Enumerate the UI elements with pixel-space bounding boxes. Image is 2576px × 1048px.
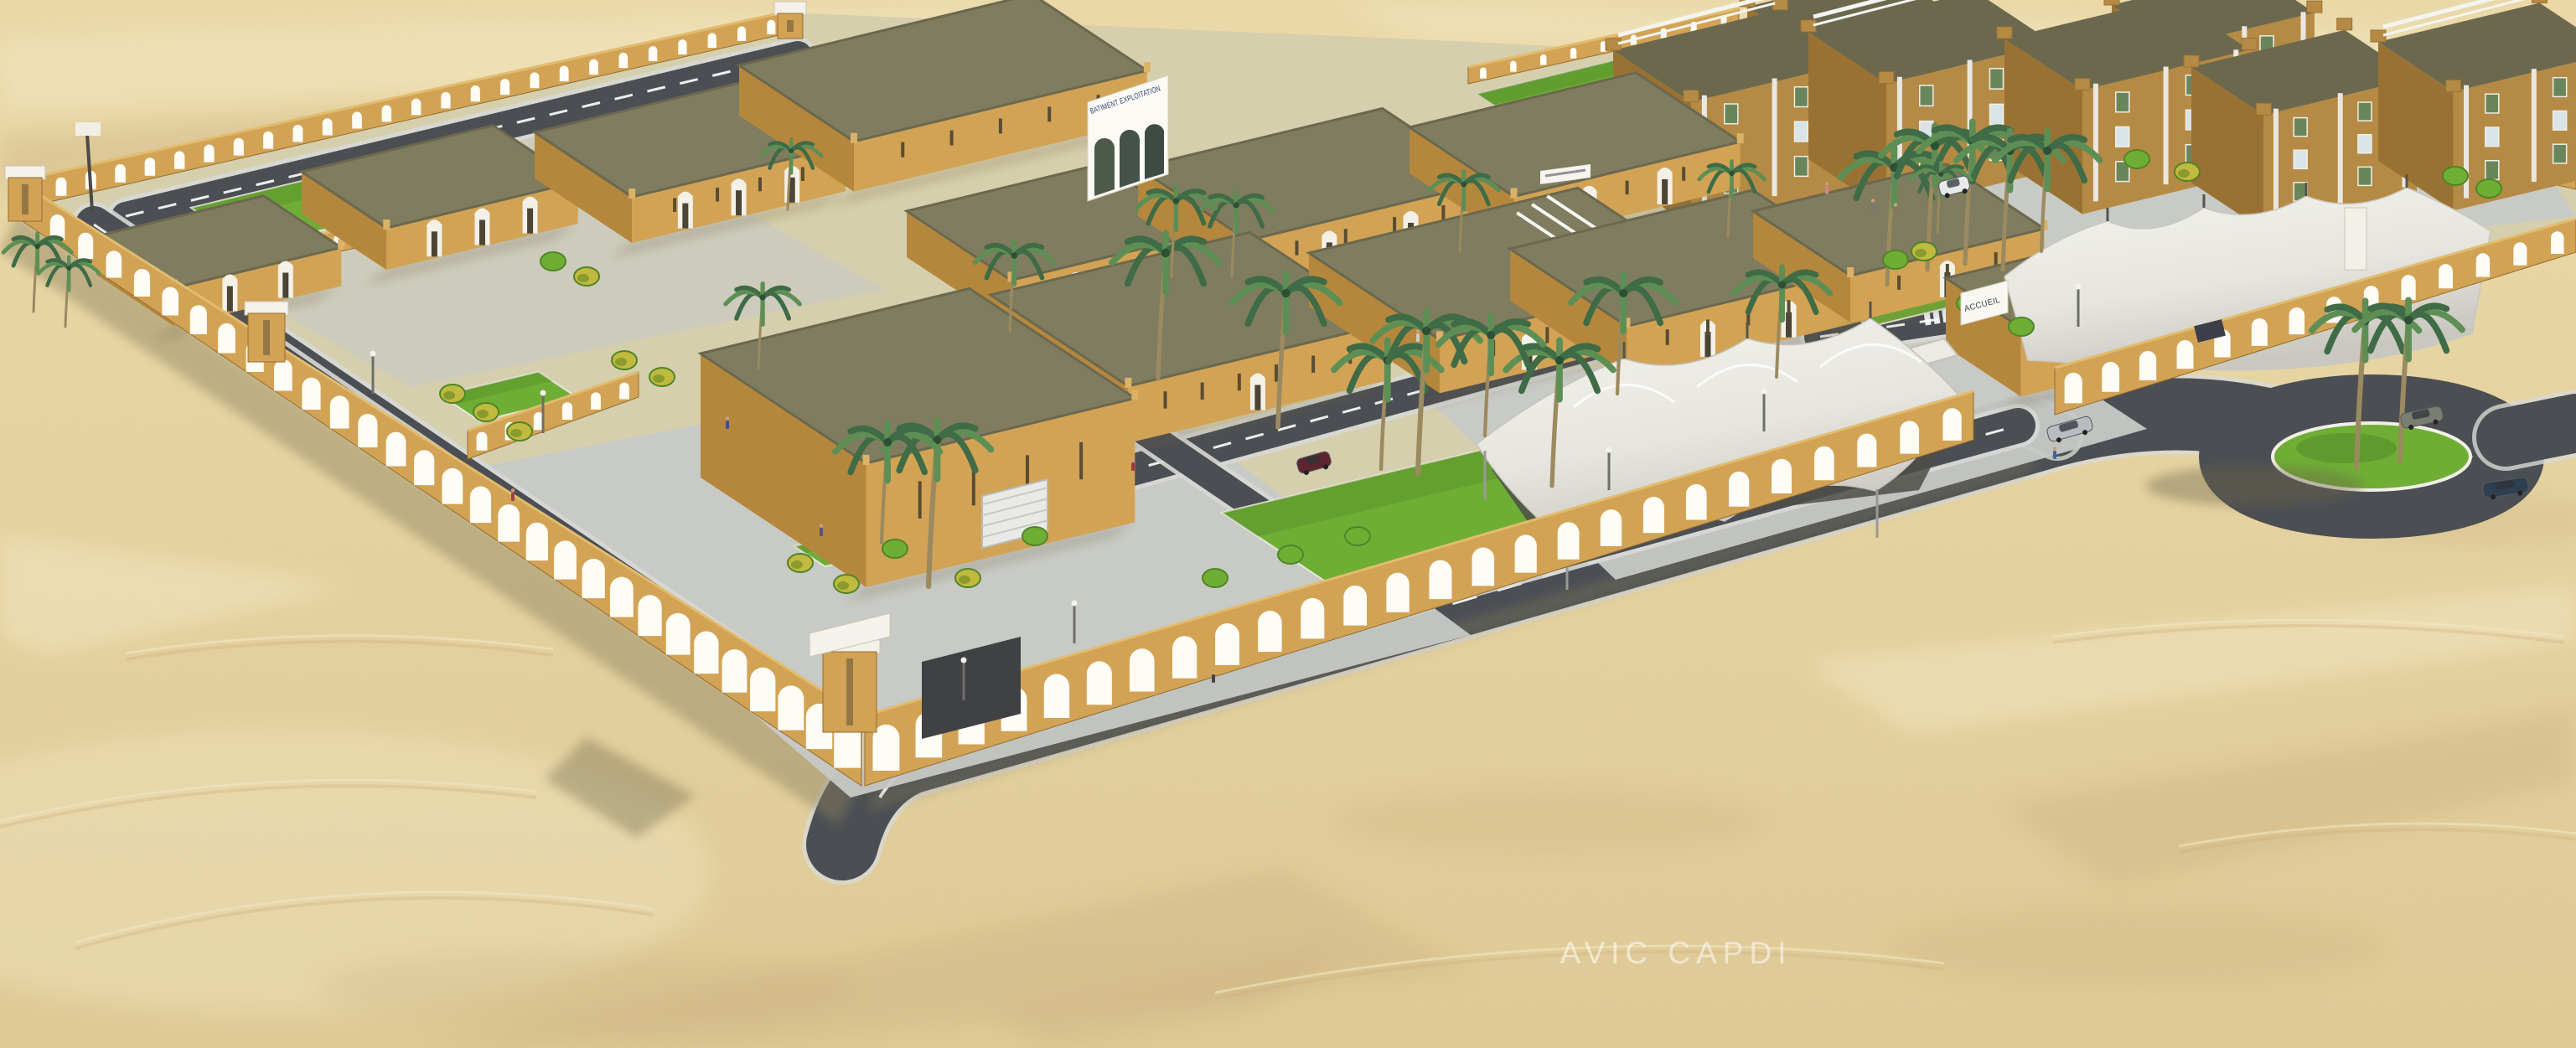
parapet-finial bbox=[1131, 390, 1138, 400]
wall-arch bbox=[778, 685, 804, 730]
wall-arch bbox=[292, 125, 303, 142]
wall-arch bbox=[1258, 611, 1282, 652]
bush bbox=[1203, 569, 1228, 587]
wall-arch bbox=[1215, 623, 1239, 665]
wall-arch bbox=[750, 668, 775, 711]
wall-arch bbox=[330, 395, 349, 428]
person-body bbox=[726, 421, 729, 429]
slit-window bbox=[1946, 264, 1949, 278]
tower-slit bbox=[22, 184, 28, 214]
apartment-window bbox=[2485, 94, 2499, 113]
wall-arch bbox=[441, 92, 450, 108]
slit-window bbox=[1163, 391, 1166, 408]
apartment-window bbox=[2358, 135, 2372, 153]
bush bbox=[1278, 545, 1303, 564]
apartment-window bbox=[2485, 161, 2499, 180]
parapet-finial bbox=[628, 188, 635, 199]
slit-window bbox=[1787, 300, 1791, 316]
palm-crown bbox=[1729, 171, 1734, 176]
wall-arch bbox=[382, 106, 392, 122]
person-body bbox=[1894, 207, 1897, 215]
parapet-tower bbox=[2307, 1, 2322, 13]
wall-arch bbox=[2551, 231, 2564, 254]
parapet-tower bbox=[1879, 72, 1894, 84]
door bbox=[282, 272, 288, 297]
palm-crown bbox=[2404, 316, 2413, 324]
mast-head bbox=[75, 122, 101, 136]
wall-arch bbox=[1343, 586, 1367, 626]
foliage bbox=[959, 576, 970, 584]
wall-arch bbox=[1814, 447, 1834, 481]
wall-arch bbox=[530, 72, 539, 88]
foliage bbox=[1915, 249, 1927, 257]
wall-arch bbox=[2177, 340, 2194, 369]
parapet-finial bbox=[1511, 188, 1518, 199]
person-head bbox=[1825, 182, 1829, 185]
parapet-finial bbox=[1737, 133, 1744, 143]
apartment-window bbox=[1989, 104, 2003, 124]
parapet-finial bbox=[383, 219, 390, 230]
wall-arch bbox=[1900, 421, 1919, 453]
door bbox=[682, 204, 688, 229]
wall-arch bbox=[722, 649, 747, 692]
slit-window bbox=[673, 198, 676, 212]
palm-crown bbox=[1619, 289, 1627, 297]
parapet-tower bbox=[2184, 55, 2199, 67]
wall-arch bbox=[666, 613, 691, 655]
street-lamp-head bbox=[370, 351, 376, 357]
person-body bbox=[1825, 186, 1829, 194]
parapet-finial bbox=[1847, 267, 1854, 277]
wall-arch bbox=[2401, 275, 2415, 300]
facade-pilaster bbox=[2338, 93, 2343, 203]
slit-window bbox=[1626, 181, 1629, 195]
slit-window bbox=[716, 188, 719, 202]
door bbox=[1786, 312, 1792, 338]
wall-arch bbox=[638, 595, 661, 636]
palm-crown bbox=[66, 266, 71, 271]
parapet-finial bbox=[1125, 378, 1131, 388]
apartment-window bbox=[2116, 126, 2129, 147]
slit-window bbox=[901, 142, 904, 157]
wall-arch bbox=[190, 305, 207, 334]
person-head bbox=[1131, 458, 1135, 462]
palm-crown bbox=[883, 438, 892, 447]
wall-arch bbox=[106, 250, 122, 277]
slit-window bbox=[950, 131, 954, 146]
door bbox=[1254, 385, 1260, 410]
wall-arch bbox=[204, 145, 214, 163]
foliage bbox=[791, 560, 803, 569]
wall-arch bbox=[526, 523, 548, 560]
facade-pilaster bbox=[2532, 69, 2537, 182]
wall-arch bbox=[708, 33, 716, 48]
wall-arch bbox=[234, 138, 244, 156]
parapet-tower bbox=[2532, 0, 2547, 3]
tower-slit bbox=[846, 658, 853, 725]
wall-arch bbox=[218, 323, 235, 354]
door bbox=[736, 190, 742, 215]
wall-arch bbox=[1515, 534, 1537, 572]
parapet-tower bbox=[1772, 0, 1787, 10]
slit-window bbox=[918, 481, 922, 518]
wall-arch bbox=[386, 432, 406, 467]
slit-window bbox=[1201, 383, 1204, 400]
apartment-window bbox=[2553, 78, 2567, 97]
person-body bbox=[820, 528, 823, 536]
palm-crown bbox=[1161, 249, 1170, 257]
island-shading bbox=[2296, 433, 2397, 463]
apartment-window bbox=[2358, 167, 2372, 185]
door bbox=[432, 231, 437, 256]
street-lamp-head bbox=[1606, 447, 1612, 453]
wall-arch bbox=[78, 233, 93, 259]
watermark-text: AVIC CAPDI bbox=[1560, 936, 1792, 970]
foliage bbox=[2178, 169, 2190, 178]
bush bbox=[1345, 527, 1370, 545]
facade-pilaster bbox=[2273, 109, 2279, 219]
wall-arch bbox=[1087, 661, 1112, 705]
street-lamp-head bbox=[1761, 389, 1767, 395]
apartment-window bbox=[1989, 69, 2003, 89]
wall-arch bbox=[1540, 54, 1546, 65]
foliage bbox=[477, 410, 489, 418]
slit-window bbox=[1682, 167, 1685, 181]
bush bbox=[2009, 317, 2034, 336]
palm-crown bbox=[760, 294, 766, 300]
palm-crown bbox=[34, 244, 39, 249]
palm-crown bbox=[1422, 327, 1430, 335]
wall-arch bbox=[2252, 318, 2268, 346]
slit-window bbox=[999, 118, 1002, 133]
slit-window bbox=[1994, 252, 1998, 266]
street-lamp-head bbox=[961, 658, 967, 663]
foliage bbox=[510, 429, 522, 437]
wall-arch bbox=[1942, 408, 1961, 441]
slit-window bbox=[1295, 240, 1298, 255]
wall-arch bbox=[263, 132, 273, 149]
street-lamp-head bbox=[541, 390, 546, 396]
wall-arch bbox=[554, 540, 577, 579]
exit-road bbox=[2506, 423, 2576, 437]
person-head bbox=[1871, 199, 1875, 202]
foliage bbox=[615, 358, 627, 366]
apartment-window bbox=[2553, 144, 2567, 163]
wall-arch bbox=[1301, 598, 1324, 638]
wall-arch bbox=[619, 383, 629, 400]
slit-window bbox=[1666, 329, 1669, 345]
parapet-tower bbox=[2242, 38, 2257, 49]
wall-arch bbox=[1772, 459, 1792, 493]
wall-arch bbox=[477, 432, 488, 451]
wall-arch bbox=[471, 85, 480, 101]
wall-arch bbox=[1729, 472, 1749, 507]
parapet-finial bbox=[1144, 62, 1151, 72]
door bbox=[1704, 332, 1710, 357]
wall-arch bbox=[678, 39, 686, 54]
wall-arch bbox=[115, 164, 126, 183]
person-body bbox=[1416, 333, 1420, 342]
wall-arch bbox=[737, 26, 746, 40]
wall-arch bbox=[274, 359, 292, 390]
parapet-tower bbox=[1684, 90, 1699, 102]
apartment-window bbox=[1794, 87, 1808, 107]
wall-arch bbox=[562, 402, 572, 420]
bush bbox=[882, 539, 908, 558]
slit-window bbox=[1311, 356, 1315, 373]
door bbox=[479, 219, 485, 245]
parapet-tower bbox=[2075, 79, 2090, 90]
person-body bbox=[2053, 451, 2056, 459]
wall-arch bbox=[174, 151, 184, 168]
wall-arch bbox=[591, 392, 601, 409]
wall-arch bbox=[2476, 253, 2490, 276]
slit-window bbox=[801, 167, 804, 181]
wall-arch bbox=[498, 504, 520, 541]
wall-arch bbox=[162, 287, 178, 316]
wall-arch bbox=[358, 414, 377, 447]
wall-arch bbox=[2513, 242, 2527, 266]
wall-arch bbox=[1857, 434, 1876, 467]
foliage bbox=[577, 274, 589, 282]
wall-arch bbox=[589, 59, 598, 75]
street-lamp-head bbox=[2076, 284, 2082, 290]
wall-arch bbox=[582, 559, 605, 598]
palm-crown bbox=[1011, 252, 1017, 258]
palm-crown bbox=[789, 148, 794, 153]
foliage bbox=[653, 374, 665, 383]
wall-arch bbox=[56, 178, 67, 196]
wall-arch bbox=[442, 468, 463, 504]
parapet-tower bbox=[2256, 103, 2271, 115]
portico-arch bbox=[1094, 138, 1115, 196]
wall-arch bbox=[560, 65, 569, 81]
apartment-window bbox=[1920, 85, 1933, 106]
bush bbox=[2443, 167, 2468, 185]
wall-arch bbox=[1570, 48, 1576, 59]
wall-arch bbox=[134, 269, 150, 297]
portico-arch bbox=[1145, 124, 1164, 179]
wall-arch bbox=[1386, 573, 1409, 612]
wall-arch bbox=[500, 79, 510, 95]
slit-window bbox=[758, 178, 762, 192]
east-gate-pillar bbox=[2345, 208, 2367, 270]
door bbox=[527, 209, 533, 234]
parapet-tower bbox=[2104, 0, 2119, 5]
wall-arch bbox=[767, 20, 775, 34]
door bbox=[227, 287, 233, 312]
bush bbox=[1022, 527, 1047, 545]
apartment-window bbox=[1725, 104, 1738, 124]
wall-arch bbox=[694, 632, 718, 674]
palm-crown bbox=[1938, 172, 1943, 177]
wall-arch bbox=[411, 99, 421, 116]
bush bbox=[2124, 150, 2149, 168]
person-body bbox=[1871, 203, 1875, 211]
palm-crown bbox=[1234, 202, 1239, 208]
palm-crown bbox=[1461, 182, 1466, 188]
slit-window bbox=[1344, 229, 1347, 243]
bush bbox=[541, 252, 566, 271]
slit-window bbox=[1079, 442, 1083, 479]
person-head bbox=[1416, 329, 1420, 333]
person-head bbox=[726, 416, 729, 420]
palm-crown bbox=[2043, 147, 2051, 155]
apartment-window bbox=[2116, 92, 2129, 112]
wall-arch bbox=[610, 577, 634, 617]
slit-window bbox=[1238, 374, 1241, 390]
palm-crown bbox=[1173, 198, 1179, 204]
slit-window bbox=[1275, 364, 1278, 381]
foliage bbox=[443, 391, 455, 400]
wall-arch bbox=[2065, 373, 2082, 404]
apartment-window bbox=[2553, 111, 2567, 130]
street-lamp-head bbox=[1072, 601, 1078, 607]
palm-crown bbox=[1487, 331, 1495, 339]
wall-arch bbox=[1686, 484, 1707, 520]
portico-arch bbox=[1120, 130, 1140, 188]
bush bbox=[2476, 179, 2501, 198]
slit-window bbox=[1047, 106, 1051, 121]
slit-window bbox=[1545, 327, 1549, 343]
wall-arch bbox=[649, 46, 657, 61]
wall-arch bbox=[619, 53, 628, 68]
parapet-finial bbox=[863, 455, 870, 465]
wall-arch bbox=[1044, 674, 1069, 718]
architectural-rendering: BATIMENT EXPLOITATION ACCUEIL AVIC CAPDI bbox=[0, 0, 2576, 1048]
apartment-window bbox=[2294, 118, 2307, 137]
scene-canvas: BATIMENT EXPLOITATION ACCUEIL AVIC CAPDI bbox=[0, 0, 2576, 1048]
tower-slit bbox=[263, 320, 270, 355]
wall-arch bbox=[1643, 497, 1664, 533]
wall-arch bbox=[1510, 61, 1517, 72]
person-body bbox=[511, 493, 515, 501]
wall-arch bbox=[2439, 264, 2453, 288]
apartment-window bbox=[2294, 150, 2307, 168]
tower-slit bbox=[787, 20, 794, 32]
wall-arch bbox=[1172, 636, 1197, 678]
slit-window bbox=[1706, 320, 1710, 336]
facade-pilaster bbox=[2164, 67, 2169, 185]
person-body bbox=[1131, 462, 1135, 471]
person-head bbox=[1894, 203, 1897, 206]
apartment-window bbox=[2485, 127, 2499, 147]
wall-arch bbox=[1558, 522, 1580, 560]
wall-arch bbox=[1601, 509, 1622, 546]
wall-arch bbox=[323, 118, 333, 135]
wall-arch bbox=[1480, 67, 1487, 78]
slit-window bbox=[1897, 276, 1901, 290]
facade-pilaster bbox=[1772, 79, 1777, 197]
wall-arch bbox=[1472, 547, 1495, 586]
palm-crown bbox=[1778, 281, 1786, 288]
parapet-tower bbox=[2337, 18, 2352, 30]
slit-window bbox=[1393, 217, 1396, 231]
wall-arch bbox=[145, 157, 155, 176]
apartment-window bbox=[1794, 157, 1808, 177]
wall-arch bbox=[1130, 648, 1155, 691]
foliage bbox=[837, 581, 849, 590]
palm-crown bbox=[1555, 356, 1564, 364]
apartment-window bbox=[2358, 102, 2372, 121]
wall-arch bbox=[2102, 362, 2119, 392]
facade-pilaster bbox=[2093, 84, 2098, 202]
slit-window bbox=[1441, 205, 1445, 219]
wall-arch bbox=[1429, 560, 1451, 600]
person-head bbox=[820, 524, 823, 527]
palm-shadow bbox=[2145, 466, 2363, 506]
person-head bbox=[2053, 447, 2056, 450]
slit-window bbox=[972, 468, 975, 505]
person-head bbox=[511, 488, 515, 492]
person-head bbox=[1212, 670, 1215, 674]
wall-arch bbox=[302, 378, 320, 410]
wall-arch bbox=[2289, 307, 2304, 334]
parapet-tower bbox=[1997, 27, 2012, 39]
door bbox=[1662, 179, 1668, 204]
parapet-finial bbox=[851, 133, 857, 143]
palm-crown bbox=[1281, 289, 1290, 297]
wall-arch bbox=[2139, 351, 2156, 380]
wall-arch bbox=[470, 487, 491, 524]
wall-arch bbox=[414, 450, 434, 485]
bush bbox=[1883, 250, 1908, 269]
wall-arch bbox=[352, 111, 362, 128]
apartment-window bbox=[1794, 121, 1808, 142]
person-body bbox=[1212, 674, 1215, 683]
parapet-tower bbox=[2446, 80, 2461, 91]
